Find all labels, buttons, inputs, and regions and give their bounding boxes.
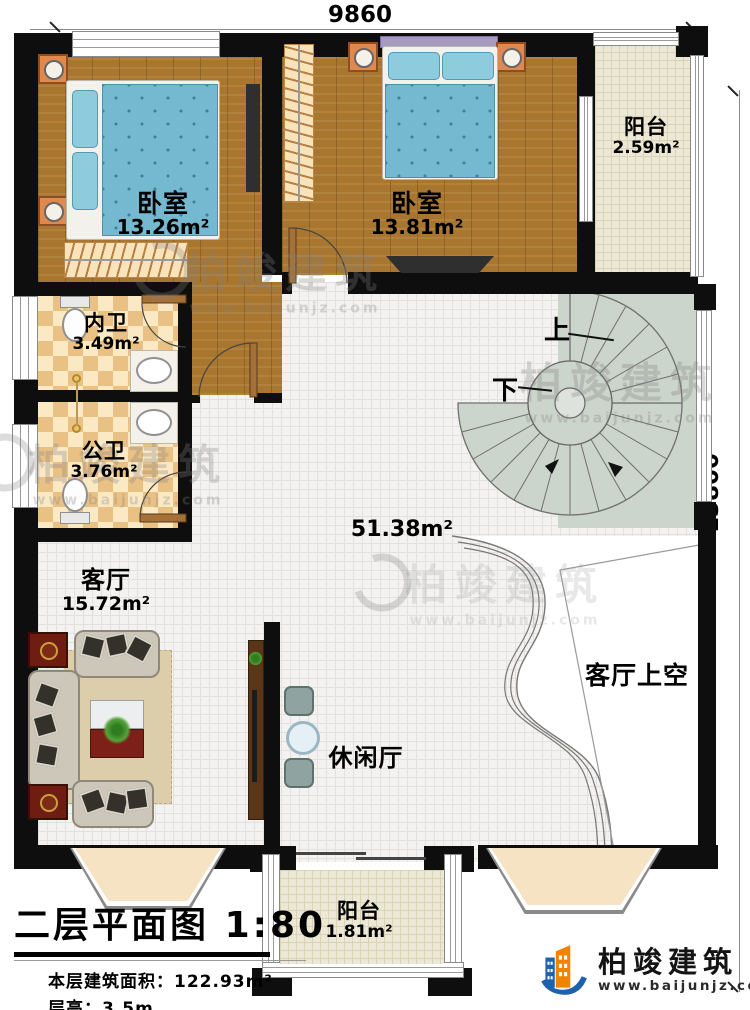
floor-area-line: 本层建筑面积：122.93m² bbox=[48, 967, 326, 992]
plan-title: 二层平面图 1:80 bbox=[14, 896, 326, 948]
door-arc-bath-public bbox=[140, 472, 186, 518]
brand-website: www.baijunjz.com bbox=[598, 979, 750, 994]
floor-height-line: 层高：3.5m bbox=[48, 994, 326, 1010]
room-label-bath-private: 内卫 3.49m² bbox=[72, 312, 139, 353]
room-label-balcony-bottom: 阳台 1.81m² bbox=[325, 900, 392, 941]
brand-block: 柏竣建筑 www.baijunjz.com bbox=[534, 942, 750, 998]
title-underline bbox=[14, 952, 270, 957]
brand-logo-icon bbox=[534, 942, 590, 998]
room-label-leisure: 休闲厅 bbox=[329, 746, 404, 772]
door-leaf-bedroom-2 bbox=[289, 228, 296, 283]
room-label-bath-public: 公卫 3.76m² bbox=[70, 440, 137, 481]
door-leaf-bath-public bbox=[140, 514, 186, 522]
title-underline-thin bbox=[14, 960, 306, 961]
brand-name: 柏竣建筑 bbox=[598, 947, 750, 979]
room-label-bedroom-2: 卧室 13.81m² bbox=[371, 190, 464, 239]
stair-up-label: 上 bbox=[544, 310, 570, 347]
door-arc-bedroom-2 bbox=[292, 228, 347, 283]
room-label-balcony-top: 阳台 2.59m² bbox=[612, 116, 679, 157]
door-arc-passage bbox=[199, 343, 253, 397]
door-leaf-bath-private bbox=[142, 295, 186, 303]
room-label-hall-area: 51.38m² bbox=[351, 518, 453, 542]
room-label-void: 客厅上空 bbox=[585, 662, 689, 689]
room-label-living: 客厅 15.72m² bbox=[62, 568, 150, 614]
room-label-bedroom-1: 卧室 13.26m² bbox=[117, 190, 210, 239]
door-arc-bath-private bbox=[142, 303, 186, 347]
door-leaf-passage bbox=[250, 343, 257, 397]
stair-down-label: 下 bbox=[492, 370, 518, 407]
floor-plan-canvas: 9860 13800 bbox=[0, 0, 750, 1010]
title-block: 二层平面图 1:80 本层建筑面积：122.93m² 层高：3.5m bbox=[14, 896, 326, 1010]
